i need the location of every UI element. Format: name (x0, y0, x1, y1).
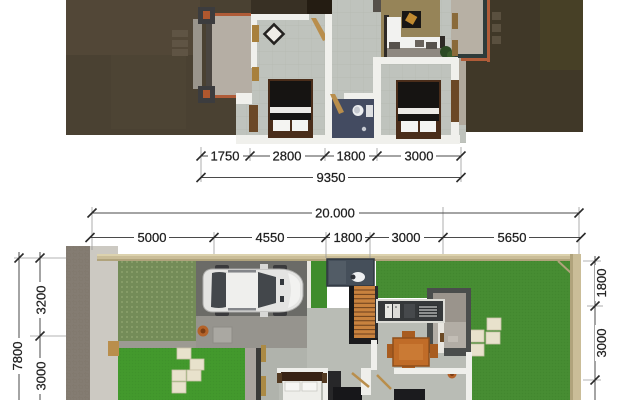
svg-text:3200: 3200 (34, 286, 49, 315)
svg-text:2800: 2800 (273, 149, 302, 164)
svg-text:1800: 1800 (334, 230, 363, 245)
svg-text:3000: 3000 (392, 230, 421, 245)
svg-text:4550: 4550 (256, 230, 285, 245)
svg-text:1800: 1800 (337, 149, 366, 164)
svg-text:5650: 5650 (498, 230, 527, 245)
svg-text:20.000: 20.000 (315, 206, 355, 221)
svg-text:1750: 1750 (211, 149, 240, 164)
svg-text:7800: 7800 (10, 342, 25, 371)
svg-text:3000: 3000 (594, 329, 609, 358)
svg-text:1800: 1800 (594, 269, 609, 298)
svg-text:5000: 5000 (138, 230, 167, 245)
svg-text:9350: 9350 (317, 170, 346, 185)
svg-text:3000: 3000 (34, 362, 49, 391)
svg-text:3000: 3000 (405, 149, 434, 164)
